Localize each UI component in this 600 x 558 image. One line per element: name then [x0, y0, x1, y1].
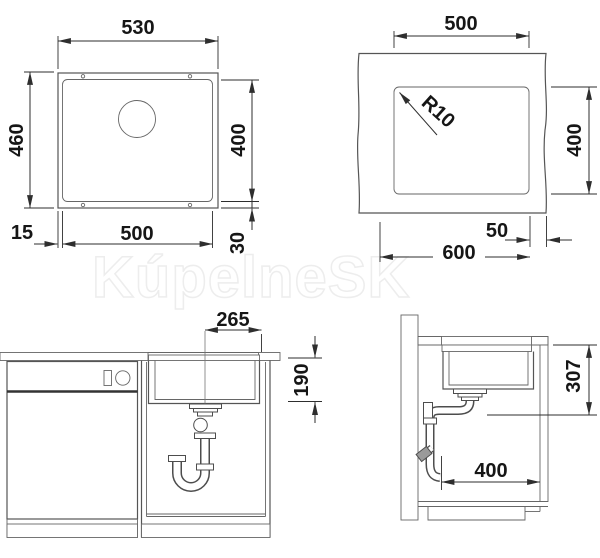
- bowl-outer-side: [443, 352, 534, 390]
- left-cabinet: [7, 362, 138, 520]
- drain-flange: [190, 404, 222, 409]
- countertop-front: [0, 353, 148, 361]
- dim-cutout-height-label: 400: [564, 123, 586, 156]
- sink-rim-front: [149, 355, 260, 361]
- dim-bowl-depth-label: 190: [291, 363, 313, 396]
- cutout-edge: [394, 87, 529, 194]
- dim-drain-height-label: 307: [563, 359, 585, 392]
- pipe-coupling: [424, 403, 433, 419]
- dim-bowl-width-label: 500: [120, 223, 153, 245]
- bowl-outer-front: [149, 361, 260, 404]
- sink-rim-side: [442, 345, 532, 352]
- dim-bowl-height-label: 400: [228, 123, 250, 156]
- dim-edge-offset-label: 50: [486, 220, 508, 242]
- countertop-front: [259, 353, 281, 361]
- cabinet-side-panel: [540, 345, 548, 502]
- dim-drain-offset-label: 265: [216, 309, 249, 331]
- sink-top-view: 530 460 400 30 500 15: [6, 17, 259, 254]
- countertop-cutout-view: R10 500 400 50 600: [358, 13, 597, 264]
- drain-flange-side: [454, 389, 487, 394]
- pipe-coupling: [169, 456, 186, 462]
- cabinet-side-view: 307 400: [401, 315, 597, 520]
- right-plinth: [142, 524, 271, 538]
- dim-min-depth-label: 400: [474, 460, 507, 482]
- sink-outer-edge: [58, 73, 218, 208]
- drain-elbow: [194, 418, 208, 432]
- plinth-side: [428, 507, 525, 521]
- cabinet-front-view: 265 190: [0, 309, 322, 538]
- drawing-canvas: 530 460 400 30 500 15: [0, 0, 600, 558]
- dim-outer-height-label: 460: [6, 123, 28, 156]
- dim-edge-offset-left-label: 15: [11, 222, 33, 244]
- pipe-coupling: [195, 433, 216, 439]
- dim-cutout-width-label: 500: [444, 13, 477, 35]
- countertop-side: [418, 337, 548, 346]
- pipe-coupling: [424, 418, 437, 424]
- bowl-inner-side: [449, 352, 528, 386]
- technical-drawing-page: KúpelneSK 530: [0, 0, 600, 558]
- wall-section: [401, 315, 418, 520]
- dim-edge-offset-bottom-label: 30: [227, 232, 249, 254]
- left-plinth: [7, 524, 138, 538]
- dim-cabinet-width-label: 600: [442, 242, 475, 264]
- dim-outer-width-label: 530: [121, 17, 154, 39]
- pipe-coupling: [197, 464, 214, 470]
